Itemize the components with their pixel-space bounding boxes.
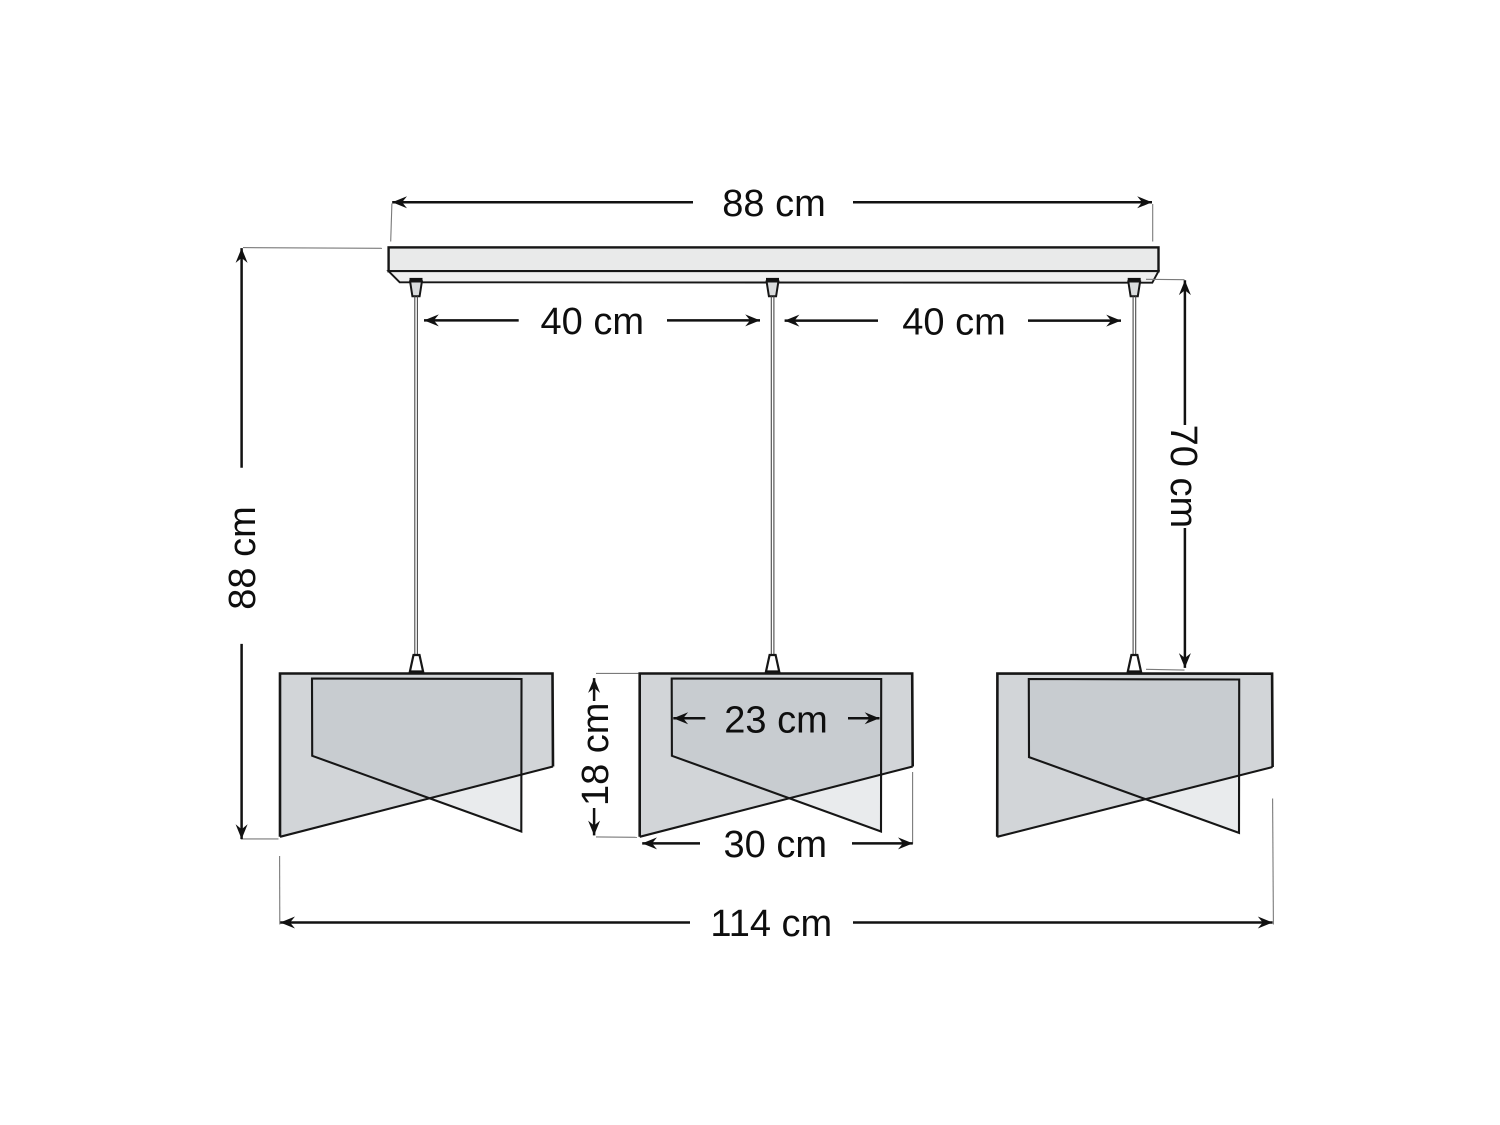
svg-text:30 cm: 30 cm: [724, 824, 827, 866]
svg-text:40 cm: 40 cm: [902, 301, 1005, 343]
svg-text:70 cm: 70 cm: [1162, 425, 1204, 528]
svg-text:40 cm: 40 cm: [541, 301, 644, 343]
svg-text:18 cm: 18 cm: [575, 703, 617, 806]
svg-text:88 cm: 88 cm: [222, 506, 264, 609]
svg-text:114 cm: 114 cm: [710, 903, 832, 945]
svg-text:88 cm: 88 cm: [722, 183, 825, 225]
svg-text:23 cm: 23 cm: [724, 699, 827, 741]
